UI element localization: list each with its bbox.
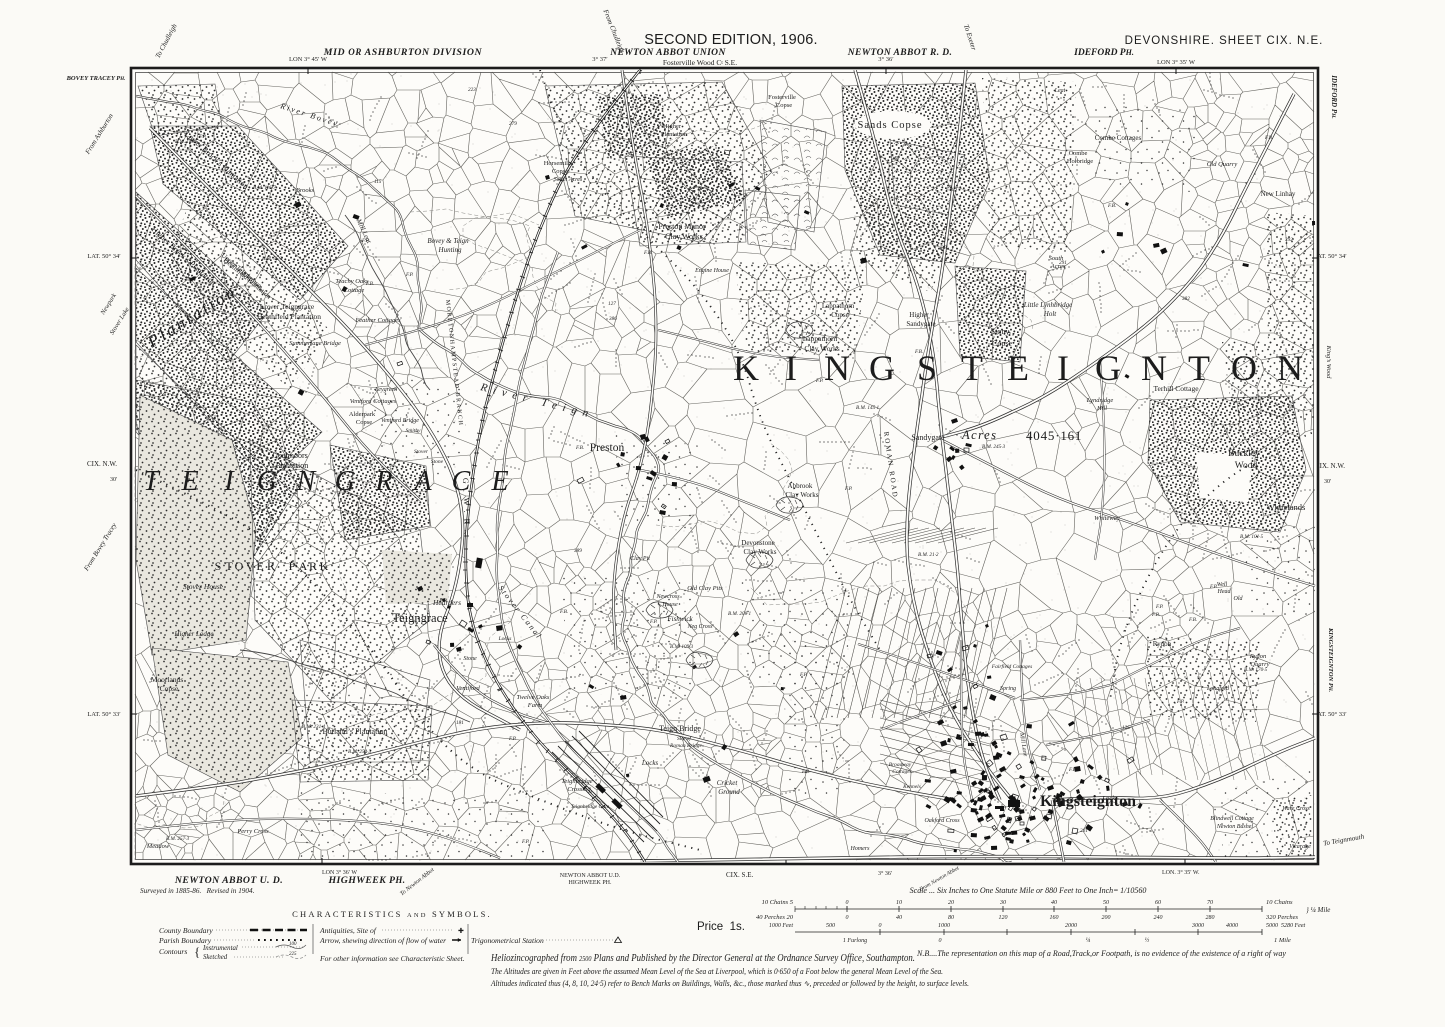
svg-text:2000: 2000 (1065, 923, 1077, 929)
svg-text:Fishwick: Fishwick (666, 615, 693, 623)
svg-text:Neg Cross: Neg Cross (687, 624, 714, 630)
svg-text:T: T (225, 559, 233, 573)
svg-text:F.P.: F.P. (649, 619, 658, 625)
svg-text:30′: 30′ (1324, 479, 1332, 485)
svg-text:BOVEY TRACEY PH.: BOVEY TRACEY PH. (66, 75, 126, 82)
svg-text:F.P.: F.P. (508, 736, 517, 742)
svg-text:E: E (180, 466, 198, 497)
svg-text:Meadow: Meadow (146, 843, 170, 850)
svg-text:F.B.: F.B. (575, 445, 584, 451)
svg-text:F.P.: F.P. (361, 238, 370, 244)
svg-text:F.B.: F.B. (945, 187, 954, 193)
svg-text:DEVONSHIRE. SHEET CIX. N.E.: DEVONSHIRE. SHEET CIX. N.E. (1125, 35, 1324, 47)
svg-text:G: G (335, 466, 355, 497)
svg-text:Stone: Stone (431, 459, 444, 465)
svg-text:F.B.: F.B. (365, 281, 374, 287)
svg-text:Teignbridge Gate: Teignbridge Gate (571, 804, 610, 810)
svg-text:Locks: Locks (1101, 795, 1118, 802)
svg-text:Cottage: Cottage (344, 287, 365, 294)
svg-text:Leat: Leat (1054, 88, 1066, 94)
svg-text:Moorlands: Moorlands (151, 675, 184, 684)
svg-text:Preston Manor: Preston Manor (658, 222, 706, 231)
svg-text:Locks: Locks (498, 636, 512, 642)
svg-text:40: 40 (896, 914, 902, 921)
svg-text:N: N (1277, 348, 1303, 388)
svg-text:Kingsteignton: Kingsteignton (1040, 793, 1136, 810)
svg-text:Copse: Copse (160, 684, 179, 693)
svg-text:Scale ... Six Inches to One St: Scale ... Six Inches to One Statute Mile… (910, 886, 1147, 895)
svg-text:Lappathorn: Lappathorn (822, 302, 855, 310)
svg-text:N: N (824, 348, 850, 388)
svg-text:Combe: Combe (1069, 150, 1088, 157)
svg-text:E: E (1007, 348, 1029, 388)
svg-text:Copse: Copse (992, 339, 1012, 348)
svg-text:R: R (309, 559, 317, 573)
svg-text:F.P.: F.P. (844, 486, 853, 492)
svg-text:0: 0 (846, 900, 849, 906)
svg-text:Twelve Oaks: Twelve Oaks (517, 694, 550, 701)
svg-text:B.M. 145·1: B.M. 145·1 (856, 404, 879, 411)
svg-text:Terhill Cottage: Terhill Cottage (1153, 384, 1199, 393)
svg-text:B.M. 55·3: B.M. 55·3 (262, 256, 283, 262)
svg-text:200: 200 (1102, 915, 1111, 921)
svg-text:1000 Feet: 1000 Feet (769, 923, 793, 929)
svg-text:✚: ✚ (458, 927, 464, 935)
svg-text:E: E (490, 466, 508, 497)
svg-text:Higher: Higher (663, 123, 682, 130)
svg-text:Ware Cross: Ware Cross (1282, 806, 1310, 812)
svg-text:Teachy Oaks: Teachy Oaks (335, 278, 369, 285)
svg-text:Copse: Copse (356, 419, 372, 426)
svg-text:MID OR ASHBURTON DIVISION: MID OR ASHBURTON DIVISION (323, 47, 483, 58)
svg-text:Smithy: Smithy (406, 428, 422, 434)
svg-text:A: A (299, 559, 308, 573)
svg-text:Feather Cottages: Feather Cottages (354, 317, 401, 324)
svg-text:Teign Bridge: Teign Bridge (659, 724, 701, 733)
svg-text:B.M. 116·7: B.M. 116·7 (253, 185, 276, 191)
svg-text:¼: ¼ (1086, 938, 1091, 944)
svg-text:279: 279 (509, 121, 517, 127)
svg-text:G: G (1095, 348, 1121, 388)
svg-text:Horsemills: Horsemills (544, 160, 573, 167)
svg-text:CIX. N.W.: CIX. N.W. (1315, 462, 1345, 470)
svg-text:CHARACTERISTICS AND SYMBOLS.: CHARACTERISTICS AND SYMBOLS. (292, 909, 492, 919)
svg-text:F.B.: F.B. (1107, 203, 1116, 209)
svg-text:Fairfield Cottages: Fairfield Cottages (991, 663, 1033, 670)
svg-text:B.M. 245·3: B.M. 245·3 (982, 443, 1005, 450)
svg-text:LON 3° 45′ W: LON 3° 45′ W (289, 56, 328, 63)
svg-text:Surveyed in 1885-86. Revised: Surveyed in 1885-86. Revised in 1904. (140, 887, 255, 895)
svg-text:240: 240 (1154, 914, 1163, 921)
svg-text:Newton Bushel: Newton Bushel (1216, 824, 1253, 830)
svg-text:LON 3° 35′ W: LON 3° 35′ W (1157, 59, 1196, 66)
svg-text:Fosterville: Fosterville (768, 94, 796, 101)
svg-text:A: A (412, 466, 432, 497)
svg-text:3° 37′: 3° 37′ (592, 56, 608, 63)
svg-text:B.M. 208·1: B.M. 208·1 (728, 611, 751, 617)
svg-text:Altitudes indicated thus (4, 8: Altitudes indicated thus (4, 8, 10, 24·5… (490, 979, 969, 988)
svg-text:Summerlane Bridge: Summerlane Bridge (289, 340, 341, 347)
svg-text:Kennels: Kennels (902, 784, 921, 790)
svg-text:386: 386 (609, 316, 617, 322)
svg-text:County Boundary: County Boundary (159, 926, 213, 935)
svg-text:F.B.: F.B. (439, 598, 448, 604)
svg-text:B.M. 254·3: B.M. 254·3 (348, 748, 371, 755)
svg-text:LON 3° 36′ W: LON 3° 36′ W (322, 869, 357, 876)
svg-text:Old: Old (1234, 596, 1244, 602)
svg-text:Newcross: Newcross (655, 594, 680, 600)
svg-text:Price 1s.: Price 1s. (697, 921, 745, 933)
svg-text:Parish Boundary: Parish Boundary (158, 936, 212, 945)
svg-text:R: R (267, 559, 275, 573)
svg-text:Arrow, shewing direction of fl: Arrow, shewing direction of flow of wate… (319, 936, 446, 945)
svg-text:Locks: Locks (641, 759, 659, 767)
svg-text:½: ½ (1145, 937, 1150, 944)
svg-text:Cottages: Cottages (892, 769, 912, 775)
svg-text:1000: 1000 (938, 923, 950, 929)
svg-text:B.M. 109·3: B.M. 109·3 (670, 644, 693, 650)
svg-text:382: 382 (1182, 296, 1190, 302)
svg-text:O: O (1231, 348, 1257, 388)
svg-text:The Altitudes are given in Fee: The Altitudes are given in Feet above th… (491, 967, 943, 976)
svg-text:Clay Works: Clay Works (804, 344, 839, 353)
svg-text:0: 0 (846, 915, 849, 921)
svg-text:Abbrook: Abbrook (788, 482, 813, 490)
svg-text:Hill: Hill (1096, 405, 1107, 412)
svg-text:246: 246 (891, 155, 899, 162)
svg-text:Teignbridge: Teignbridge (561, 778, 592, 785)
svg-text:Copse: Copse (831, 311, 849, 319)
svg-text:Rydon: Rydon (1249, 653, 1267, 660)
svg-text:B.M. 21·2: B.M. 21·2 (918, 552, 939, 558)
svg-text:Crossing: Crossing (567, 786, 591, 793)
svg-text:Head: Head (1217, 589, 1232, 595)
svg-text:3000: 3000 (1191, 923, 1204, 929)
svg-text:Contours: Contours (159, 947, 187, 956)
svg-text:T: T (143, 466, 161, 497)
svg-text:Copse: Copse (776, 102, 792, 109)
svg-text:G: G (869, 348, 895, 388)
svg-text:Holt: Holt (1043, 310, 1058, 318)
svg-text:Spring: Spring (1000, 686, 1016, 692)
svg-text:E: E (256, 559, 263, 573)
svg-text:Rydon: Rydon (1153, 640, 1172, 648)
svg-text:50: 50 (1103, 900, 1109, 906)
svg-text:NEWTON ABBOT R. D.: NEWTON ABBOT R. D. (847, 48, 953, 58)
svg-text:Homers: Homers (850, 846, 871, 852)
svg-text:Lyndridge: Lyndridge (1086, 397, 1114, 404)
svg-text:160: 160 (1050, 915, 1059, 921)
svg-text:} ¼ Mile: } ¼ Mile (1306, 906, 1330, 914)
svg-text:Vicarage: Vicarage (1289, 844, 1311, 850)
svg-text:1 Furlong: 1 Furlong (843, 938, 867, 944)
svg-text:389: 389 (574, 548, 582, 554)
svg-text:Copse: Copse (552, 168, 568, 175)
svg-text:King’s Wood: King’s Wood (1325, 345, 1332, 379)
svg-text:201: 201 (1080, 828, 1088, 834)
svg-text:Plantation: Plantation (661, 131, 688, 138)
svg-text:Little Lynhbridge: Little Lynhbridge (1023, 301, 1073, 309)
svg-text:I: I (785, 348, 797, 388)
svg-text:Roman Bridge: Roman Bridge (669, 743, 702, 749)
svg-text:120: 120 (999, 915, 1008, 921)
svg-text:F.P.: F.P. (1176, 699, 1185, 705)
svg-text:Higher Lodge: Higher Lodge (173, 630, 213, 638)
svg-text:N: N (1141, 348, 1167, 388)
svg-text:10 Chains 5: 10 Chains 5 (762, 899, 794, 906)
svg-text:Stover: Stover (414, 449, 429, 455)
svg-text:CIX. S.E.: CIX. S.E. (726, 871, 753, 879)
svg-text:Engine House: Engine House (694, 268, 729, 274)
svg-text:Ventford Bridge: Ventford Bridge (381, 417, 419, 424)
svg-text:B.M. 170·5: B.M. 170·5 (1244, 667, 1267, 673)
svg-text:K: K (320, 559, 329, 573)
svg-text:Higher: Higher (909, 311, 929, 319)
svg-text:3° 36′: 3° 36′ (878, 870, 893, 877)
svg-text:Well: Well (1217, 582, 1228, 588)
svg-text:O: O (235, 559, 244, 573)
svg-text:Heliozincographed from 2500: Heliozincographed from 2500 Plans and Pu… (490, 953, 915, 964)
svg-text:F.B.: F.B. (1068, 767, 1077, 773)
svg-text:Combe Cottages: Combe Cottages (1095, 134, 1142, 142)
svg-text:0: 0 (939, 938, 942, 944)
svg-text:Trigonometrical Station: Trigonometrical Station (471, 936, 544, 945)
svg-text:0: 0 (879, 923, 882, 929)
svg-text:Brooks: Brooks (296, 187, 315, 194)
svg-text:South Acres: South Acres (554, 177, 583, 183)
svg-text:For other information see Char: For other information see Characteristic… (319, 954, 465, 963)
svg-text:5000 5280 Feet: 5000 5280 Feet (1266, 923, 1305, 929)
svg-text:Clay Works: Clay Works (786, 491, 819, 499)
svg-text:KINGSTEIGNTON PH.: KINGSTEIGNTON PH. (1327, 627, 1334, 692)
svg-text:New Linhay: New Linhay (1261, 190, 1296, 198)
svg-text:Wood: Wood (1235, 461, 1258, 471)
svg-text:10: 10 (896, 900, 902, 906)
svg-text:F.P.: F.P. (521, 839, 530, 845)
svg-text:60: 60 (1155, 900, 1161, 906)
svg-text:Old Quarry: Old Quarry (1207, 161, 1238, 168)
svg-text:Whitelands: Whitelands (1267, 502, 1306, 512)
svg-text:Old Clay Pits: Old Clay Pits (687, 585, 723, 592)
svg-text:S: S (215, 559, 222, 573)
svg-text:Sketched: Sketched (203, 954, 228, 961)
svg-text:F.B.: F.B. (939, 245, 948, 251)
svg-text:IDEFORD PH.: IDEFORD PH. (1073, 48, 1134, 58)
svg-text:HIGHWEEK PH.: HIGHWEEK PH. (328, 875, 406, 886)
svg-text:B.M. 257·3: B.M. 257·3 (166, 836, 189, 842)
svg-text:Clay Works: Clay Works (744, 548, 777, 556)
svg-text:125: 125 (1122, 725, 1130, 731)
svg-text:Ground: Ground (718, 788, 740, 796)
svg-text:Lower Teigngrace: Lower Teigngrace (260, 302, 315, 311)
svg-text:T: T (961, 348, 983, 388)
svg-text:4000: 4000 (1226, 922, 1238, 929)
svg-text:Sandygate: Sandygate (911, 433, 945, 442)
svg-text:F.B.: F.B. (914, 349, 923, 355)
svg-text:N: N (296, 466, 317, 497)
svg-text:Whiteway: Whiteway (1094, 515, 1120, 522)
svg-text:115: 115 (374, 179, 382, 185)
svg-text:Devonstone: Devonstone (741, 539, 774, 547)
svg-text:Blindwell Cottage: Blindwell Cottage (1210, 816, 1254, 822)
svg-text:Holbridge: Holbridge (1067, 158, 1093, 165)
svg-text:F.P.: F.P. (799, 672, 808, 678)
svg-text:Stony: Stony (991, 327, 1010, 336)
svg-text:291: 291 (1059, 260, 1067, 266)
svg-text:Sandygate: Sandygate (906, 320, 935, 328)
svg-text:B.M. 148·5: B.M. 148·5 (175, 138, 198, 145)
svg-text:3° 36′: 3° 36′ (878, 56, 894, 63)
svg-text:F.P.: F.P. (815, 378, 824, 384)
svg-text:NEWTON ABBOT U.D.: NEWTON ABBOT U.D. (560, 873, 621, 879)
svg-text:127: 127 (608, 301, 616, 307)
svg-text:B.M. 231·4: B.M. 231·4 (302, 723, 325, 730)
svg-text:B.M. 101·5: B.M. 101·5 (1240, 534, 1263, 540)
svg-text:Preston: Preston (590, 442, 625, 454)
svg-text:F.P.: F.P. (801, 769, 810, 775)
svg-text:Ventiford: Ventiford (456, 685, 480, 692)
svg-text:F.P.: F.P. (198, 134, 207, 140)
svg-text:40 Perches 20: 40 Perches 20 (756, 914, 794, 921)
svg-text:CIX. N.W.: CIX. N.W. (87, 460, 117, 468)
svg-text:Oakford Cross: Oakford Cross (924, 817, 960, 824)
svg-text:F.P.: F.P. (405, 272, 414, 278)
svg-text:F.B.: F.B. (559, 609, 568, 615)
svg-text:Heathfield Plantation: Heathfield Plantation (257, 312, 321, 321)
svg-text:HIGHWEEK PH.: HIGHWEEK PH. (569, 880, 612, 886)
svg-text:223: 223 (468, 87, 476, 93)
svg-text:G: G (257, 466, 277, 497)
svg-text:NEWTON ABBOT U. D.: NEWTON ABBOT U. D. (174, 875, 283, 886)
svg-text:F.P.: F.P. (1209, 584, 1218, 590)
svg-text:Antiquities, Site of: Antiquities, Site of (319, 926, 377, 935)
svg-text:Longford: Longford (1206, 685, 1230, 692)
svg-text:K: K (733, 348, 759, 388)
svg-text:Sands Copse: Sands Copse (858, 120, 923, 131)
svg-text:Plantation: Plantation (276, 461, 308, 470)
svg-text:Butland’s Plantation: Butland’s Plantation (322, 727, 387, 736)
svg-text:Clay Pit: Clay Pit (630, 556, 650, 562)
svg-text:320 Perches: 320 Perches (1265, 914, 1299, 921)
svg-text:F.B.: F.B. (1264, 135, 1273, 141)
svg-text:Acres: Acres (961, 428, 998, 442)
svg-text:Ventford Cottages: Ventford Cottages (350, 398, 397, 405)
svg-text:{: { (194, 944, 200, 959)
svg-text:Cricket: Cricket (717, 779, 739, 787)
svg-text:N.B....The representation on t: N.B....The representation on this map of… (916, 949, 1286, 958)
svg-text:Site of: Site of (677, 735, 692, 742)
svg-text:4045·161: 4045·161 (1026, 428, 1082, 443)
svg-text:F.B.: F.B. (1151, 612, 1160, 618)
svg-text:Broadway: Broadway (889, 762, 912, 768)
svg-text:House: House (661, 602, 678, 608)
svg-text:Stover House: Stover House (183, 582, 224, 591)
svg-text:F.B.: F.B. (1188, 617, 1197, 623)
svg-text:40: 40 (1051, 899, 1057, 906)
svg-text:Hunting: Hunting (438, 246, 462, 254)
svg-text:SECOND EDITION, 1906.: SECOND EDITION, 1906. (644, 32, 817, 48)
svg-text:NEWTON ABBOT UNION: NEWTON ABBOT UNION (609, 48, 726, 58)
svg-text:F.P.: F.P. (1155, 604, 1164, 610)
svg-text:Instrumental: Instrumental (202, 945, 238, 952)
svg-text:Buckley: Buckley (1228, 449, 1260, 459)
svg-text:LAT. 50° 33′: LAT. 50° 33′ (87, 711, 121, 718)
svg-text:I: I (1057, 348, 1069, 388)
svg-text:280: 280 (1206, 915, 1215, 921)
svg-text:I: I (223, 466, 235, 497)
svg-text:Goalmoors: Goalmoors (272, 451, 308, 460)
svg-text:500: 500 (826, 923, 835, 929)
svg-text:Bovey & Teign: Bovey & Teign (427, 237, 469, 245)
svg-text:R: R (374, 466, 392, 497)
svg-text:Farm: Farm (527, 702, 543, 709)
svg-text:20: 20 (948, 900, 954, 906)
svg-text:10 Chains: 10 Chains (1266, 899, 1293, 906)
svg-text:V: V (246, 559, 255, 573)
svg-text:P: P (289, 559, 296, 573)
svg-text:225: 225 (289, 952, 297, 957)
svg-text:Leygreen: Leygreen (374, 387, 397, 393)
svg-text:Alderpark: Alderpark (349, 411, 376, 418)
svg-text:T: T (1188, 348, 1210, 388)
svg-text:80: 80 (948, 915, 954, 921)
svg-text:Teigngrace: Teigngrace (392, 611, 448, 625)
svg-text:Fosterville Wood Ct S.E.: Fosterville Wood Ct S.E. (663, 58, 737, 67)
svg-text:Stone: Stone (463, 656, 477, 662)
svg-text:LAT. 50° 34′: LAT. 50° 34′ (87, 253, 121, 260)
svg-text:181: 181 (456, 720, 464, 726)
svg-text:392: 392 (1285, 237, 1293, 243)
svg-text:IDEFORD PH.: IDEFORD PH. (1330, 74, 1338, 119)
svg-text:LON. 3° 35′ W.: LON. 3° 35′ W. (1162, 869, 1200, 876)
svg-text:70: 70 (1207, 900, 1213, 906)
svg-text:Clay Works: Clay Works (665, 232, 703, 241)
svg-text:30′: 30′ (110, 477, 118, 483)
svg-text:1 Mile: 1 Mile (1274, 937, 1291, 944)
svg-text:Lappathorn: Lappathorn (803, 334, 838, 343)
svg-text:F.B.: F.B. (643, 250, 652, 256)
svg-text:Perry Cross: Perry Cross (236, 828, 269, 835)
svg-text:30: 30 (999, 900, 1006, 906)
svg-text:100: 100 (289, 942, 297, 947)
